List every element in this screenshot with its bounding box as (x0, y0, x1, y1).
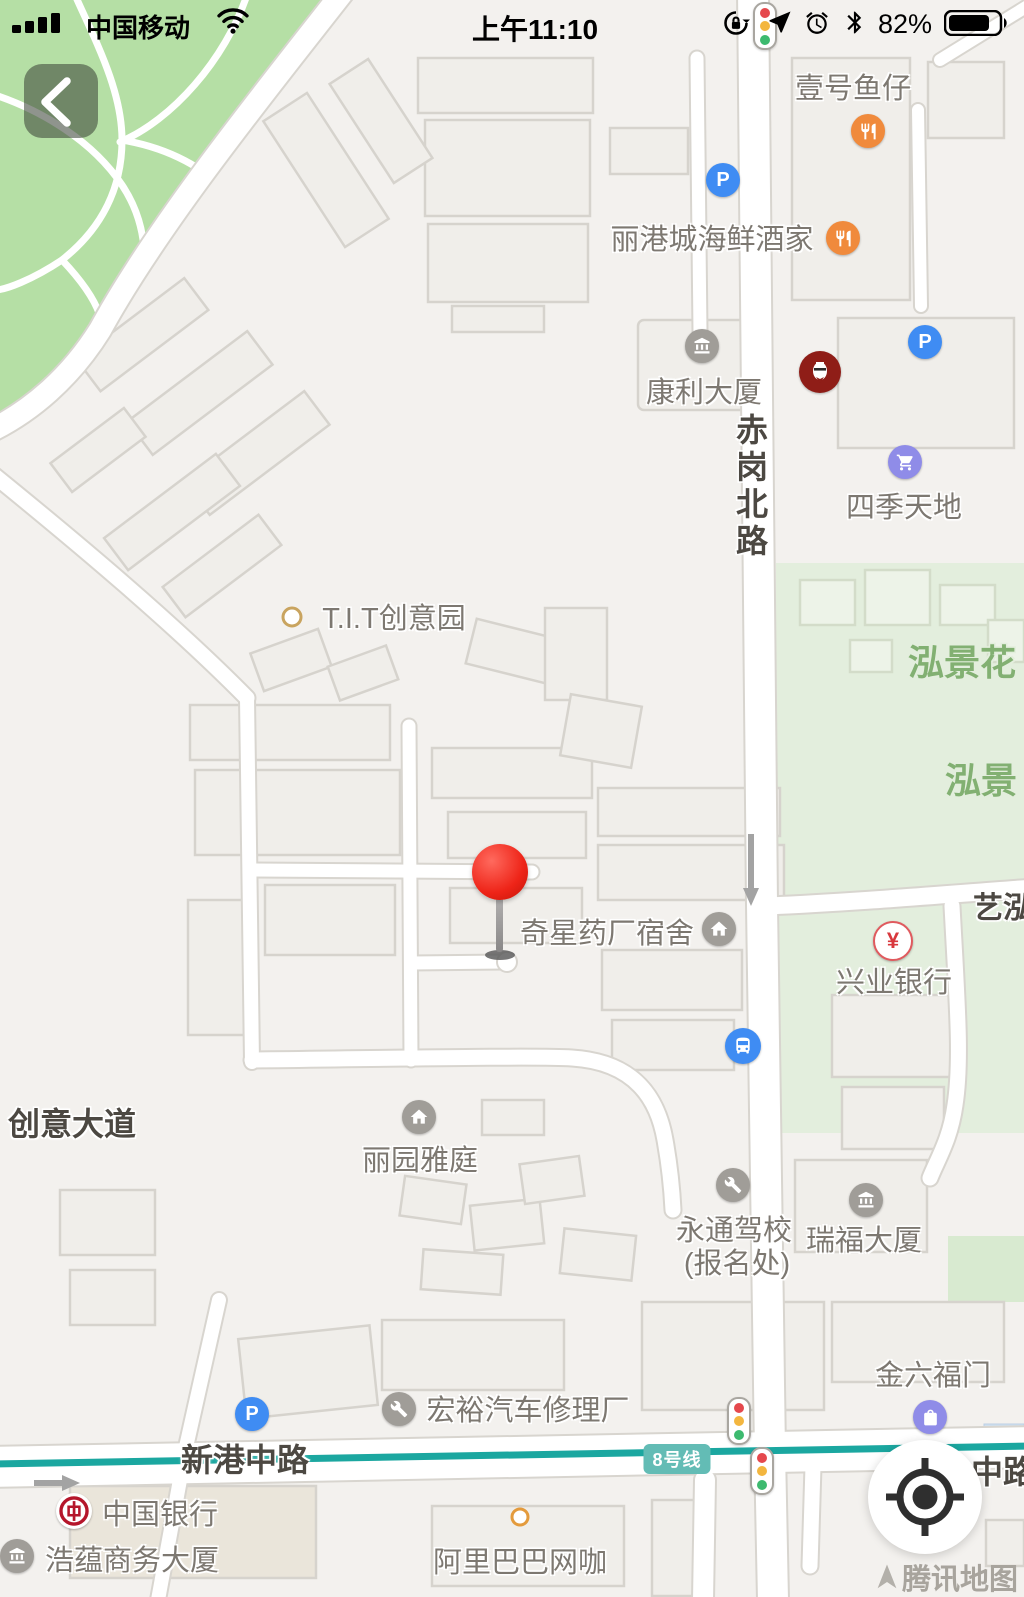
restaurant-icon[interactable] (826, 221, 860, 255)
office-building-icon[interactable] (0, 1539, 34, 1573)
shopping-cart-icon[interactable] (888, 445, 922, 479)
bluetooth-icon (842, 9, 868, 36)
home-icon[interactable] (402, 1100, 436, 1134)
alarm-clock-icon (804, 10, 830, 36)
poi-label[interactable]: 丽园雅庭 (362, 1137, 478, 1179)
poi-label[interactable]: 阿里巴巴网咖 (433, 1539, 607, 1581)
map-base-layer (0, 0, 1024, 1597)
battery-percent-label: 82% (878, 9, 932, 40)
poi-label[interactable]: 康利大厦 (646, 369, 762, 411)
poi-label[interactable]: 丽港城海鲜酒家 (610, 216, 813, 258)
watermark-label: 腾讯地图 (902, 1556, 1018, 1597)
restaurant-icon[interactable] (851, 114, 885, 148)
area-label: 泓景 (945, 752, 1017, 804)
area-label: 泓景花 (908, 634, 1016, 686)
kfc-logo-icon[interactable] (799, 351, 841, 393)
clock-label: 上午11:10 (472, 8, 598, 48)
tencent-maps-logo-icon (872, 1562, 902, 1592)
poi-label[interactable]: 壹号鱼仔 (795, 65, 911, 107)
orientation-lock-icon (722, 9, 750, 37)
poi-label[interactable]: T.I.T创意园 (322, 595, 465, 637)
poi-dot-icon[interactable] (511, 1508, 530, 1527)
office-building-icon[interactable] (849, 1183, 883, 1217)
battery-icon (944, 10, 1012, 36)
shopping-bag-icon[interactable] (913, 1400, 947, 1434)
road-label: 赤岗北路 (727, 413, 773, 561)
location-services-icon (766, 8, 794, 36)
poi-label[interactable]: 四季天地 (846, 484, 962, 526)
map-watermark: 腾讯地图 (872, 1556, 1018, 1597)
poi-label[interactable]: 奇星药厂宿舍 (520, 910, 694, 952)
crosshair-target-icon (884, 1456, 966, 1538)
metro-line-badge: 8号线 (643, 1444, 710, 1474)
office-building-icon[interactable] (685, 329, 719, 363)
poi-label[interactable]: 兴业银行 (836, 959, 952, 1001)
bus-station-icon[interactable] (725, 1028, 761, 1064)
locate-me-button[interactable] (868, 1440, 982, 1554)
poi-label[interactable]: 瑞福大厦 (806, 1217, 922, 1259)
green-patch (948, 1236, 1024, 1302)
parking-icon[interactable]: P (706, 163, 740, 197)
poi-label[interactable]: 宏裕汽车修理厂 (426, 1387, 629, 1429)
poi-label[interactable]: 中国银行 (102, 1491, 218, 1533)
parking-icon[interactable]: P (235, 1397, 269, 1431)
yuan-bank-icon[interactable]: ¥ (873, 921, 913, 961)
home-icon[interactable] (702, 912, 736, 946)
poi-dot-icon[interactable] (282, 607, 303, 628)
map-canvas[interactable]: P P P ¥ 壹号鱼仔 丽港城海鲜酒家 康利大厦 赤岗北路 四季天地 T.I.… (0, 0, 1024, 1597)
traffic-light-icon (727, 1397, 751, 1445)
parking-icon[interactable]: P (908, 325, 942, 359)
wrench-icon[interactable] (382, 1392, 416, 1426)
road-label: 创意大道 (8, 1099, 136, 1145)
poi-label[interactable]: 浩蕴商务大厦 (45, 1537, 219, 1579)
carrier-label: 中国移动 (86, 8, 190, 45)
wrench-icon[interactable] (716, 1168, 750, 1202)
road-label: 新港中路 (181, 1435, 309, 1481)
wifi-icon (216, 6, 250, 34)
status-bar: 中国移动 上午11:10 82% (0, 0, 1024, 44)
poi-label: 艺泓 (973, 883, 1024, 927)
traffic-light-icon (750, 1447, 774, 1495)
poi-label[interactable]: 金六福门 (875, 1352, 991, 1394)
bank-of-china-logo-icon[interactable] (56, 1493, 92, 1529)
signal-strength-icon (12, 12, 80, 34)
chevron-left-icon (24, 64, 98, 138)
back-button[interactable] (24, 64, 98, 138)
poi-label[interactable]: (报名处) (684, 1240, 790, 1282)
